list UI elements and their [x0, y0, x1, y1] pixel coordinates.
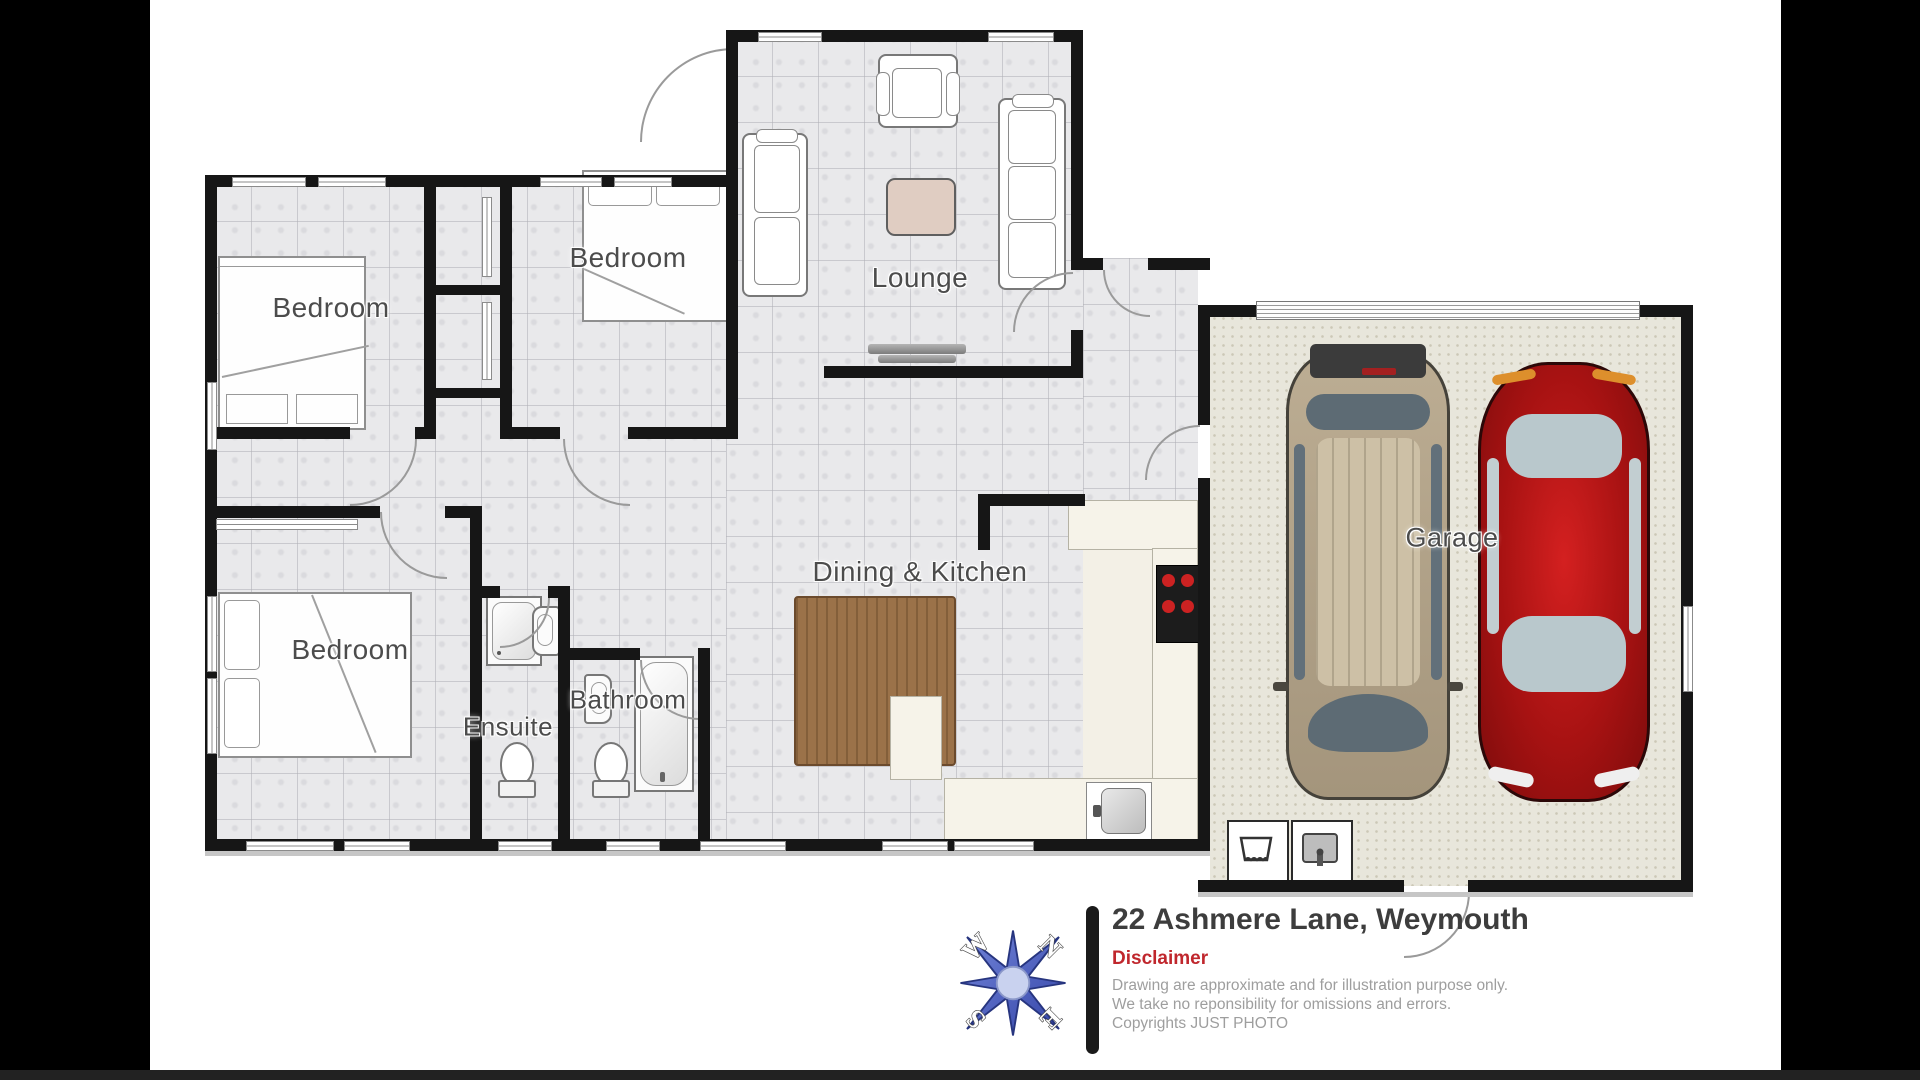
bottom-edge-strip — [0, 1070, 1920, 1080]
wall — [726, 187, 738, 439]
door-arc-entry — [640, 48, 734, 142]
wall — [482, 586, 500, 598]
wall — [500, 427, 560, 439]
window — [614, 177, 672, 187]
wall — [500, 187, 512, 439]
laundry-tub-icon — [1293, 822, 1347, 876]
wall — [1198, 316, 1210, 425]
closet-sliding-door — [482, 197, 492, 277]
ensuite-toilet — [498, 742, 534, 800]
sofa-three-seat — [998, 98, 1066, 290]
wall — [205, 427, 350, 439]
wall — [570, 648, 640, 660]
wall — [558, 586, 570, 851]
wall — [1198, 478, 1210, 851]
sofa-two-seat — [742, 133, 808, 297]
room-label-lounge: Lounge — [872, 262, 968, 294]
window — [232, 177, 306, 187]
kitchen-counter-bottom — [944, 778, 1198, 843]
disclaimer-line: Copyrights JUST PHOTO — [1112, 1014, 1508, 1033]
wall — [824, 366, 1083, 378]
wall — [1468, 880, 1693, 892]
wall — [698, 648, 710, 851]
room-label-bathroom: Bathroom — [570, 685, 687, 716]
armchair — [878, 54, 958, 128]
wall — [205, 506, 380, 518]
roof-cargo-box — [1310, 344, 1426, 378]
wall — [424, 187, 436, 439]
disclaimer-line: We take no reponsibility for omissions a… — [1112, 995, 1508, 1014]
floorplan-page: Bedroom Bedroom Lounge Bedroom Ensuite B… — [0, 0, 1920, 1080]
kitchen-counter-top — [1068, 500, 1198, 550]
closet-sliding-door — [482, 302, 492, 380]
window — [540, 177, 602, 187]
wall — [628, 427, 738, 439]
wall — [978, 494, 1085, 506]
cooktop — [1156, 565, 1200, 643]
left-letterbox-bar — [0, 0, 150, 1080]
room-label-bedroom-3: Bedroom — [291, 634, 408, 666]
wall — [1198, 880, 1404, 892]
wall — [726, 30, 738, 187]
wall — [424, 285, 512, 295]
right-letterbox-bar — [1781, 0, 1920, 1080]
tv-unit — [868, 344, 966, 354]
room-label-bedroom-1: Bedroom — [272, 292, 389, 324]
footer-divider-bar — [1086, 906, 1099, 1054]
window — [207, 596, 217, 672]
room-label-dining-kitchen: Dining & Kitchen — [812, 556, 1027, 588]
room-label-garage: Garage — [1405, 523, 1498, 554]
window — [1683, 606, 1693, 692]
laundry-tub-unit — [1291, 820, 1353, 882]
window — [988, 32, 1054, 42]
compass-icon: W N S E — [938, 908, 1088, 1058]
room-label-bedroom-2: Bedroom — [569, 242, 686, 274]
window — [954, 841, 1034, 851]
wall-shadow — [205, 851, 1210, 856]
disclaimer-line: Drawing are approximate and for illustra… — [1112, 976, 1508, 995]
wall — [415, 427, 436, 439]
garage-door — [1256, 301, 1640, 320]
washing-basket-icon — [1229, 822, 1283, 876]
window — [758, 32, 822, 42]
room-label-ensuite: Ensuite — [463, 712, 553, 743]
wall — [470, 506, 482, 851]
kitchen-island — [890, 696, 942, 780]
property-address: 22 Ashmere Lane, Weymouth — [1112, 903, 1529, 937]
car-sports-red — [1478, 362, 1650, 802]
wall — [1681, 305, 1693, 892]
wall — [1083, 258, 1103, 270]
window — [207, 678, 217, 754]
window — [606, 841, 660, 851]
window — [498, 841, 552, 851]
wall — [1148, 258, 1210, 270]
window — [246, 841, 334, 851]
window — [344, 841, 410, 851]
bed-bedroom-1 — [218, 256, 366, 430]
wall — [978, 494, 990, 550]
laundry-basket-unit — [1227, 820, 1289, 882]
bed-bedroom-3 — [218, 592, 412, 758]
coffee-table — [886, 178, 956, 236]
kitchen-sink — [1086, 782, 1152, 840]
disclaimer-text: Drawing are approximate and for illustra… — [1112, 976, 1508, 1033]
wall — [1071, 30, 1083, 270]
car-suv-tan — [1286, 352, 1450, 800]
wall — [424, 388, 512, 398]
tv-unit-shelf — [878, 355, 956, 363]
wall-shadow — [1198, 892, 1693, 897]
window — [318, 177, 386, 187]
window — [207, 382, 217, 450]
window — [700, 841, 786, 851]
disclaimer-heading: Disclaimer — [1112, 948, 1208, 970]
wardrobe-sliding-doors — [216, 519, 358, 530]
bathroom-toilet — [592, 742, 628, 800]
window — [882, 841, 948, 851]
